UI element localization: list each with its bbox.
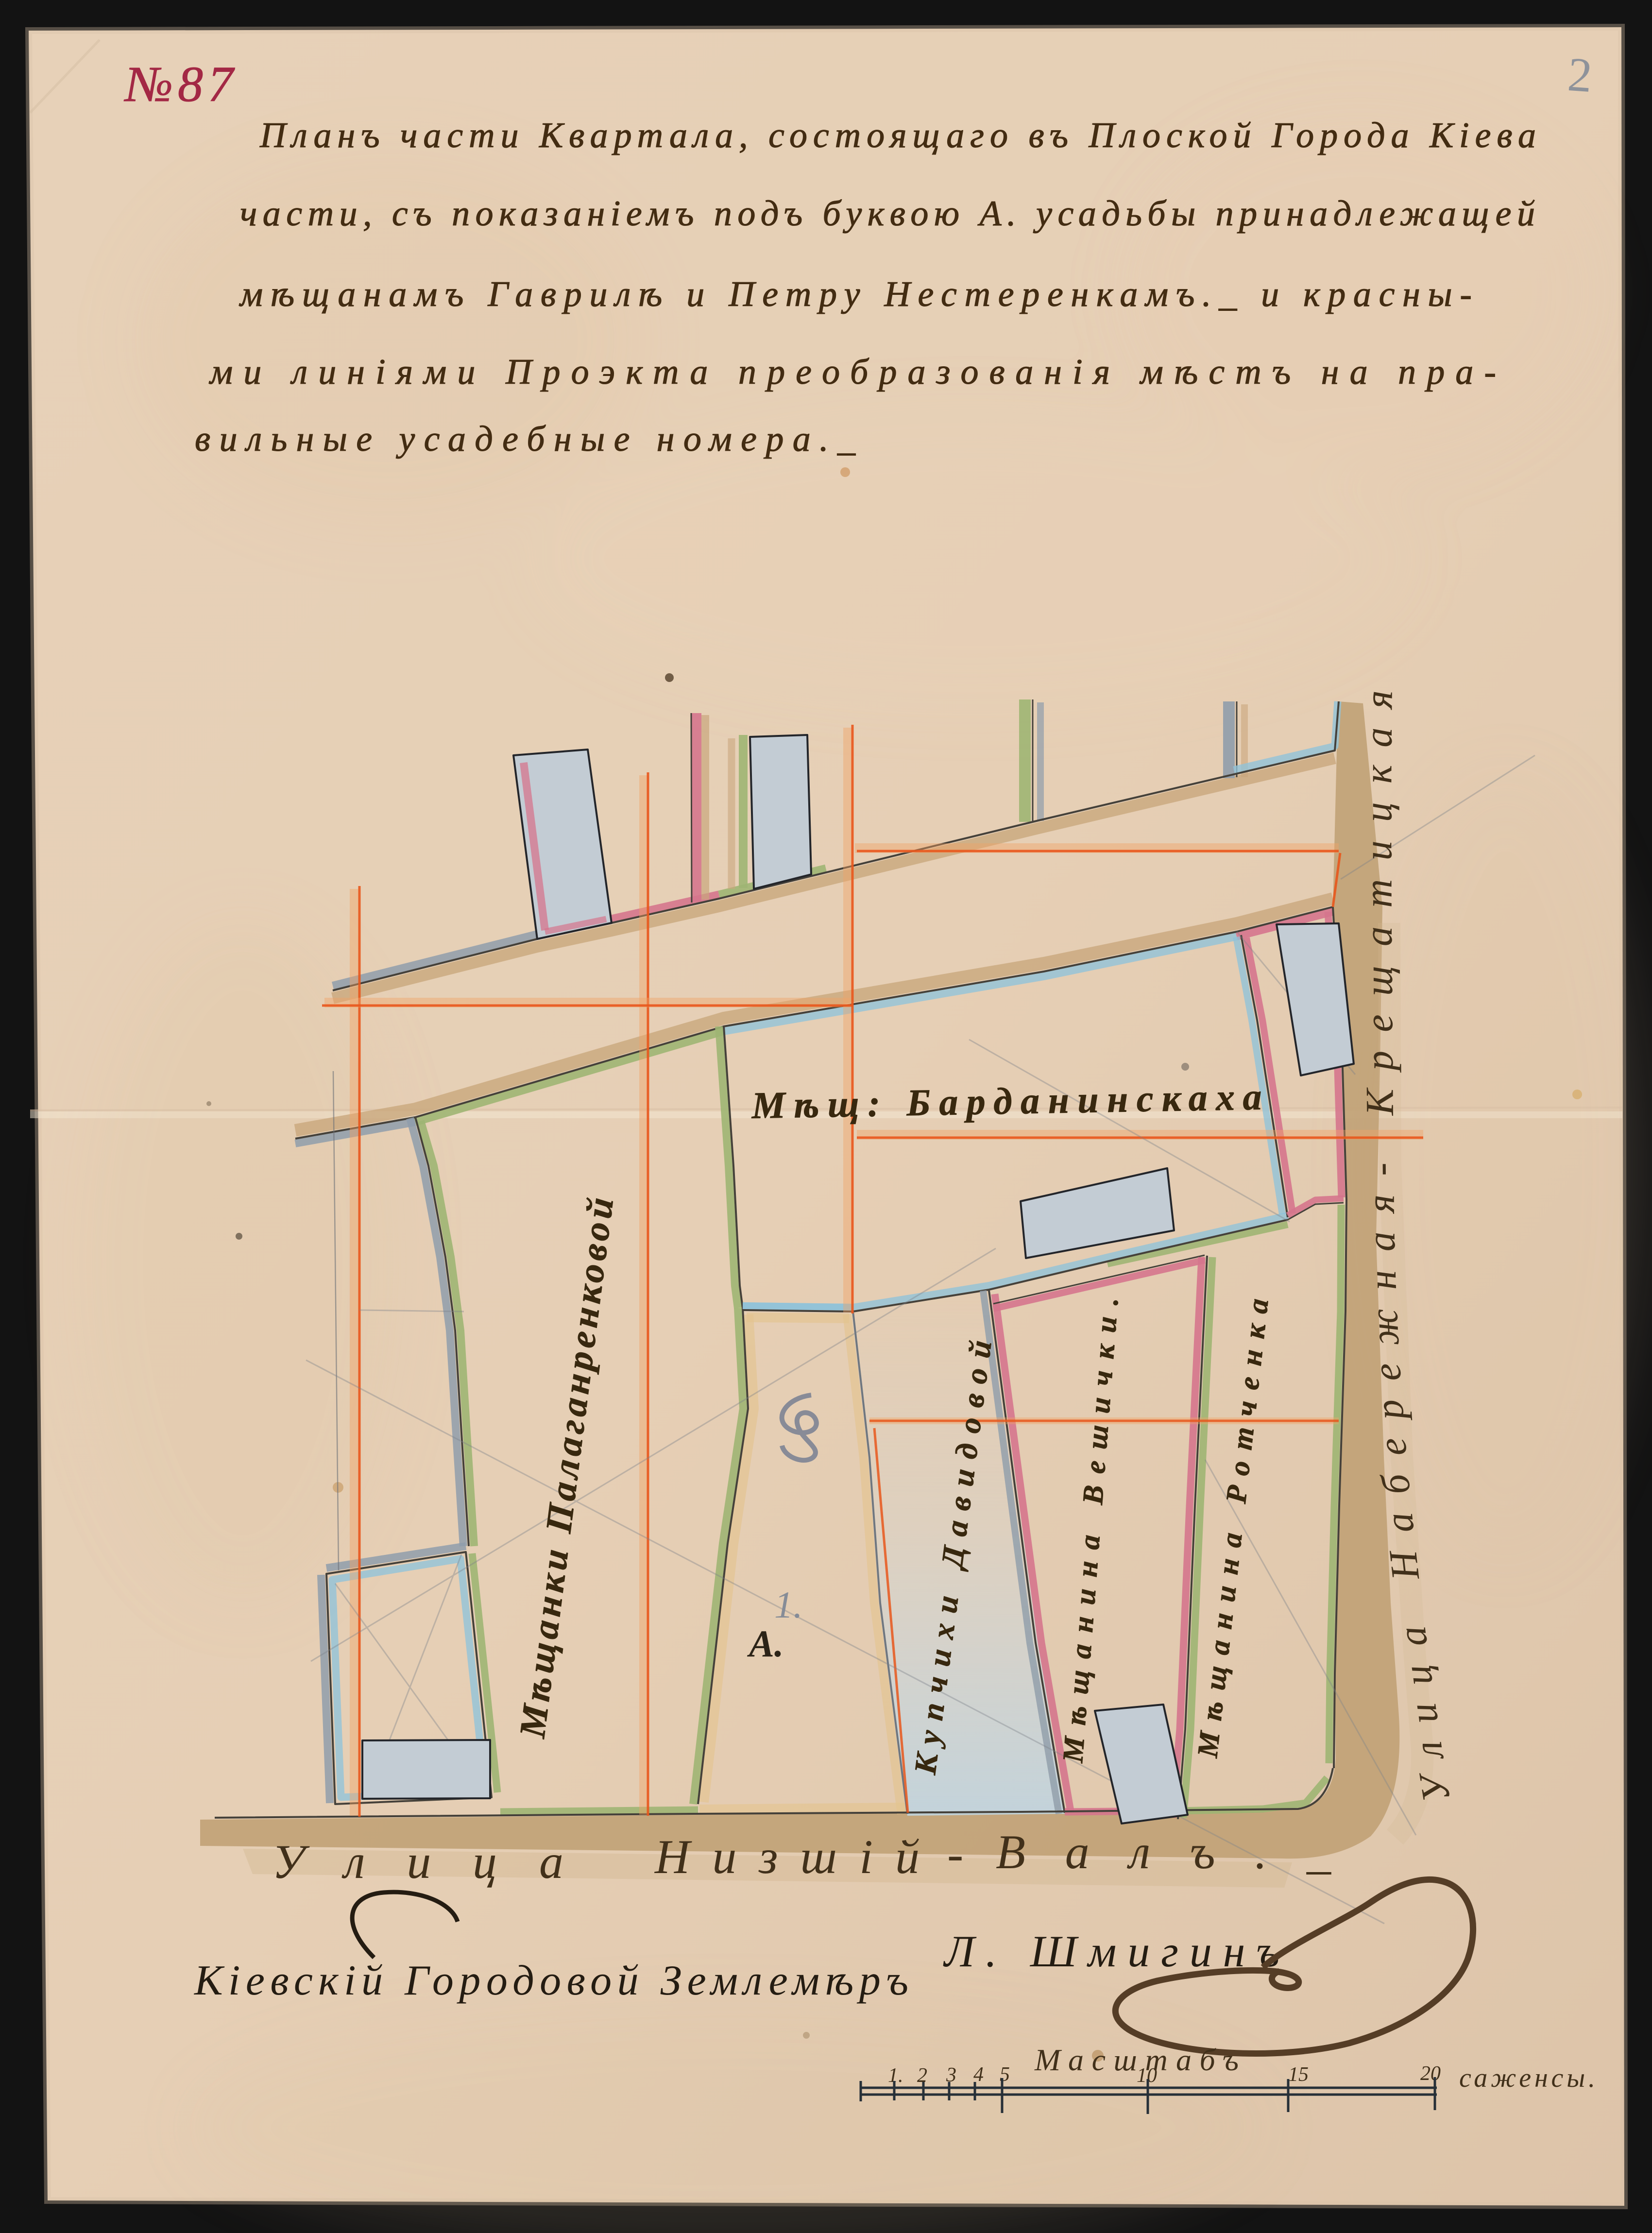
svg-text:20: 20 <box>1420 2063 1441 2085</box>
svg-text:-: - <box>947 1827 963 1881</box>
svg-text:мѣщанамъ Гаврилѣ и Петру Несте: мѣщанамъ Гаврилѣ и Петру Нестеренкамъ._ … <box>238 274 1472 314</box>
svg-text:А.: А. <box>747 1622 784 1665</box>
svg-text:2: 2 <box>1566 47 1594 102</box>
svg-text:15: 15 <box>1288 2063 1309 2086</box>
svg-text:ми линіями Проэкта преобразова: ми линіями Проэкта преобразованія мѣстъ … <box>208 352 1496 392</box>
svg-text:Планъ части Квартала, состояща: Планъ части Квартала, состоящаго въ Плос… <box>259 116 1536 155</box>
svg-text:№87: №87 <box>124 56 235 112</box>
svg-text:1.: 1. <box>774 1584 803 1626</box>
svg-text:3: 3 <box>946 2064 956 2086</box>
svg-text:1.: 1. <box>888 2064 903 2087</box>
svg-text:Кіевскій Городовой Землемѣръ: Кіевскій Городовой Землемѣръ <box>193 1957 908 2004</box>
svg-text:саженсы.: саженсы. <box>1459 2063 1595 2093</box>
